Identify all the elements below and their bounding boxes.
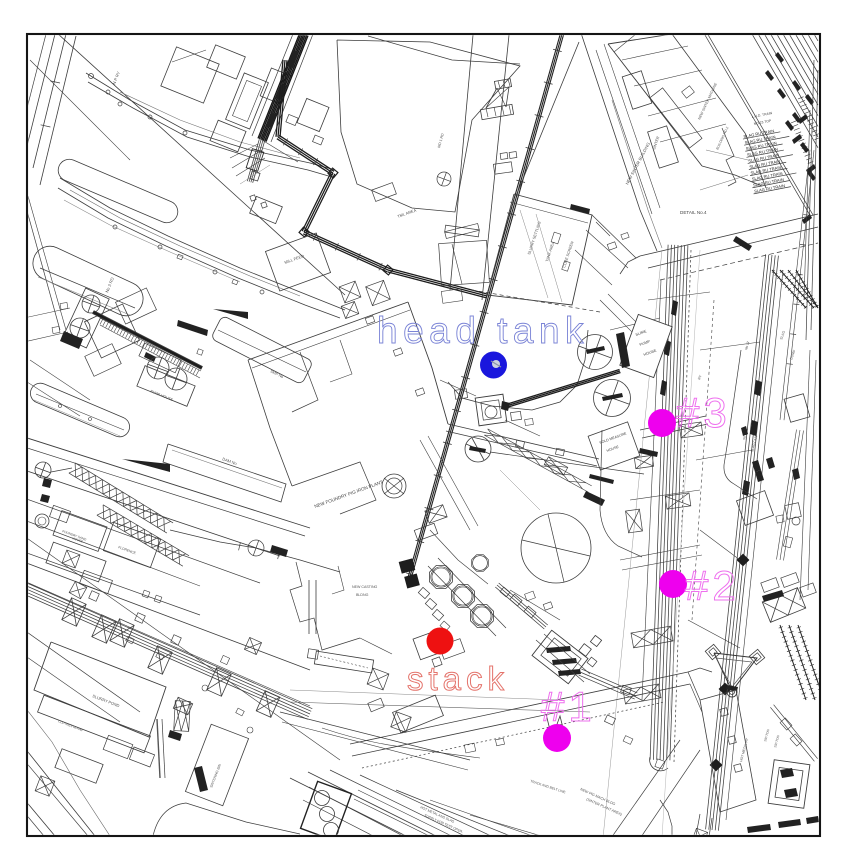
svg-text:150 TON: 150 TON — [773, 734, 780, 748]
svg-text:head tank: head tank — [377, 310, 589, 351]
svg-text:N P RY: N P RY — [111, 71, 121, 86]
svg-text:PUMP HOUSE: PUMP HOUSE — [150, 389, 174, 402]
svg-text:SINTERING BIN: SINTERING BIN — [209, 763, 222, 788]
svg-text:#2: #2 — [685, 562, 740, 609]
svg-text:TRACK AND BELT LINE: TRACK AND BELT LINE — [530, 779, 567, 794]
svg-text:No 3 RD: No 3 RD — [104, 277, 115, 294]
svg-text:SLURRY POND: SLURRY POND — [92, 693, 121, 708]
svg-text:SLAG CAR: SLAG CAR — [750, 435, 758, 452]
svg-text:HOUSE: HOUSE — [606, 445, 620, 453]
svg-text:SLAG: SLAG — [779, 330, 786, 340]
svg-text:FLORENCE: FLORENCE — [118, 545, 137, 555]
svg-text:NEW SINTER MACHINE: NEW SINTER MACHINE — [697, 82, 718, 121]
svg-text:SINTER: SINTER — [652, 136, 660, 151]
svg-text:stack: stack — [407, 660, 509, 697]
svg-text:COKE SCREEN: COKE SCREEN — [562, 241, 574, 269]
svg-text:RY: RY — [697, 374, 703, 381]
svg-text:MD 1 RD: MD 1 RD — [437, 133, 445, 149]
svg-text:NEW CASTING: NEW CASTING — [352, 585, 378, 589]
svg-text:No 12: No 12 — [744, 341, 750, 350]
svg-text:SMP No: SMP No — [270, 369, 284, 379]
svg-text:BLDNG: BLDNG — [356, 593, 369, 597]
svg-text:DETAIL No.4: DETAIL No.4 — [680, 210, 707, 215]
svg-text:CLOTHES ROOM: CLOTHES ROOM — [58, 719, 84, 732]
svg-text:TANK AREA: TANK AREA — [545, 241, 555, 263]
svg-text:HOT METAL RY: HOT METAL RY — [739, 737, 749, 762]
svg-text:TML AREA: TML AREA — [397, 207, 417, 219]
svg-text:DUMP: DUMP — [789, 349, 797, 361]
svg-text:#3: #3 — [676, 389, 731, 436]
svg-text:100 TON: 100 TON — [763, 728, 770, 742]
svg-text:MILL FEED: MILL FEED — [284, 253, 305, 265]
svg-text:#1: #1 — [541, 683, 596, 730]
svg-text:NO.23 TOP: NO.23 TOP — [753, 119, 772, 126]
svg-text:FOLD MEASURE: FOLD MEASURE — [599, 431, 628, 445]
